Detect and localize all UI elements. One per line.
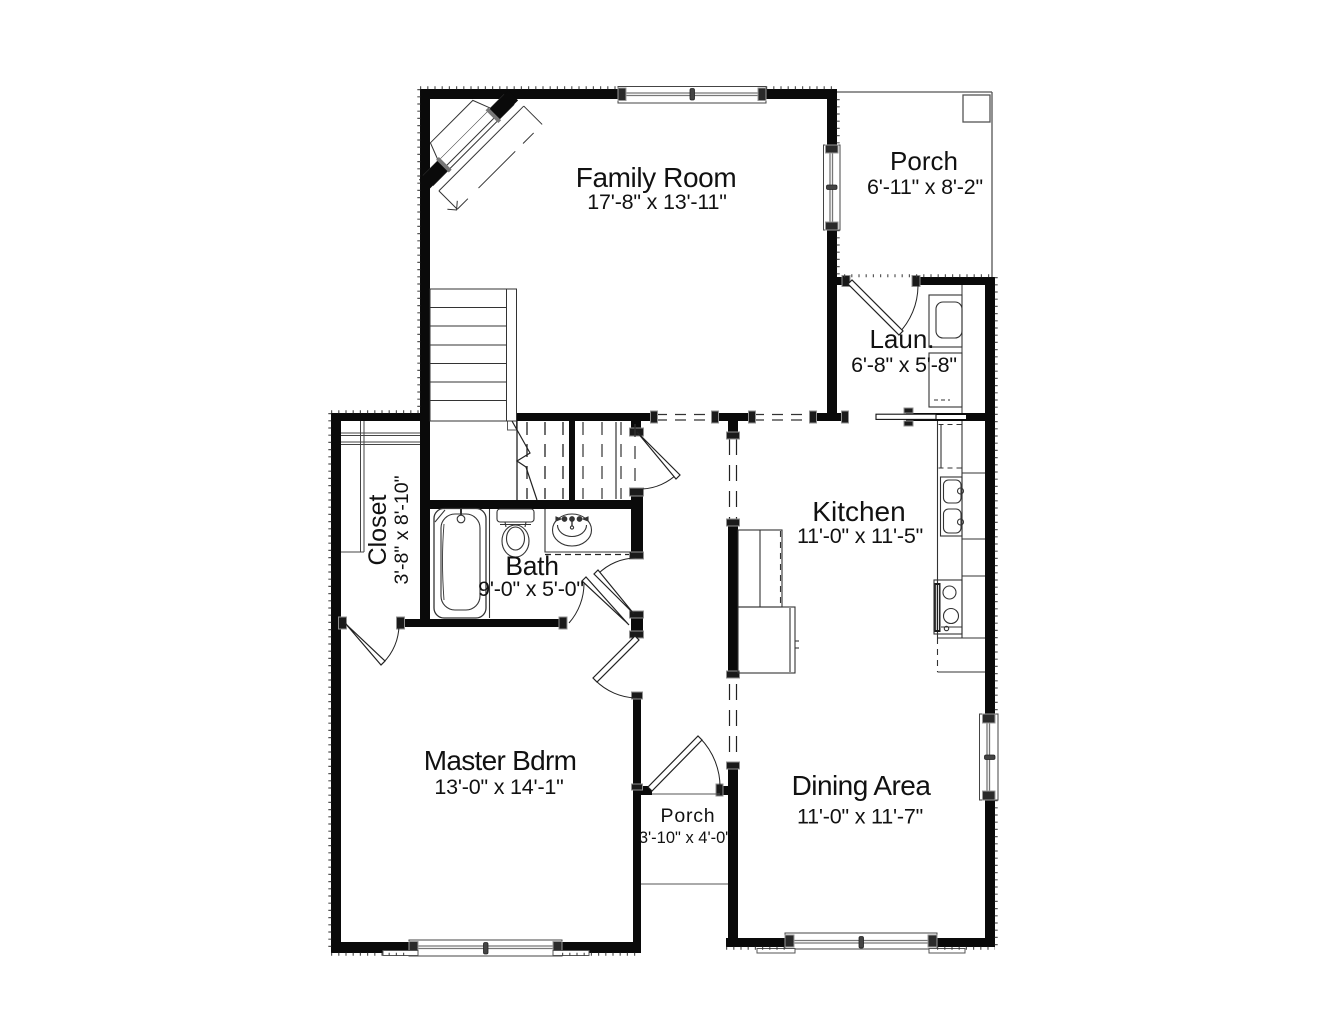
svg-text:Porch: Porch [890,146,958,176]
svg-text:3'-8" x 8'-10": 3'-8" x 8'-10" [391,475,413,584]
svg-text:Kitchen: Kitchen [812,496,905,527]
svg-text:Porch: Porch [661,805,716,827]
svg-text:Master Bdrm: Master Bdrm [424,745,577,776]
svg-text:3'-10" x 4'-0": 3'-10" x 4'-0" [639,829,731,847]
svg-text:Dining Area: Dining Area [792,770,932,801]
svg-text:11'-0" x 11'-7": 11'-0" x 11'-7" [797,805,923,829]
svg-text:6'-8" x 5'-8": 6'-8" x 5'-8" [851,353,957,377]
svg-text:Closet: Closet [364,495,392,566]
svg-text:17'-8" x 13'-11": 17'-8" x 13'-11" [587,190,726,214]
svg-text:11'-0" x 11'-5": 11'-0" x 11'-5" [797,524,923,548]
svg-text:13'-0" x 14'-1": 13'-0" x 14'-1" [434,775,563,799]
svg-text:6'-11" x 8'-2": 6'-11" x 8'-2" [867,175,983,199]
svg-text:Laun.: Laun. [869,324,934,354]
svg-text:9'-0" x 5'-0": 9'-0" x 5'-0" [478,577,584,601]
svg-text:Family Room: Family Room [576,162,737,193]
